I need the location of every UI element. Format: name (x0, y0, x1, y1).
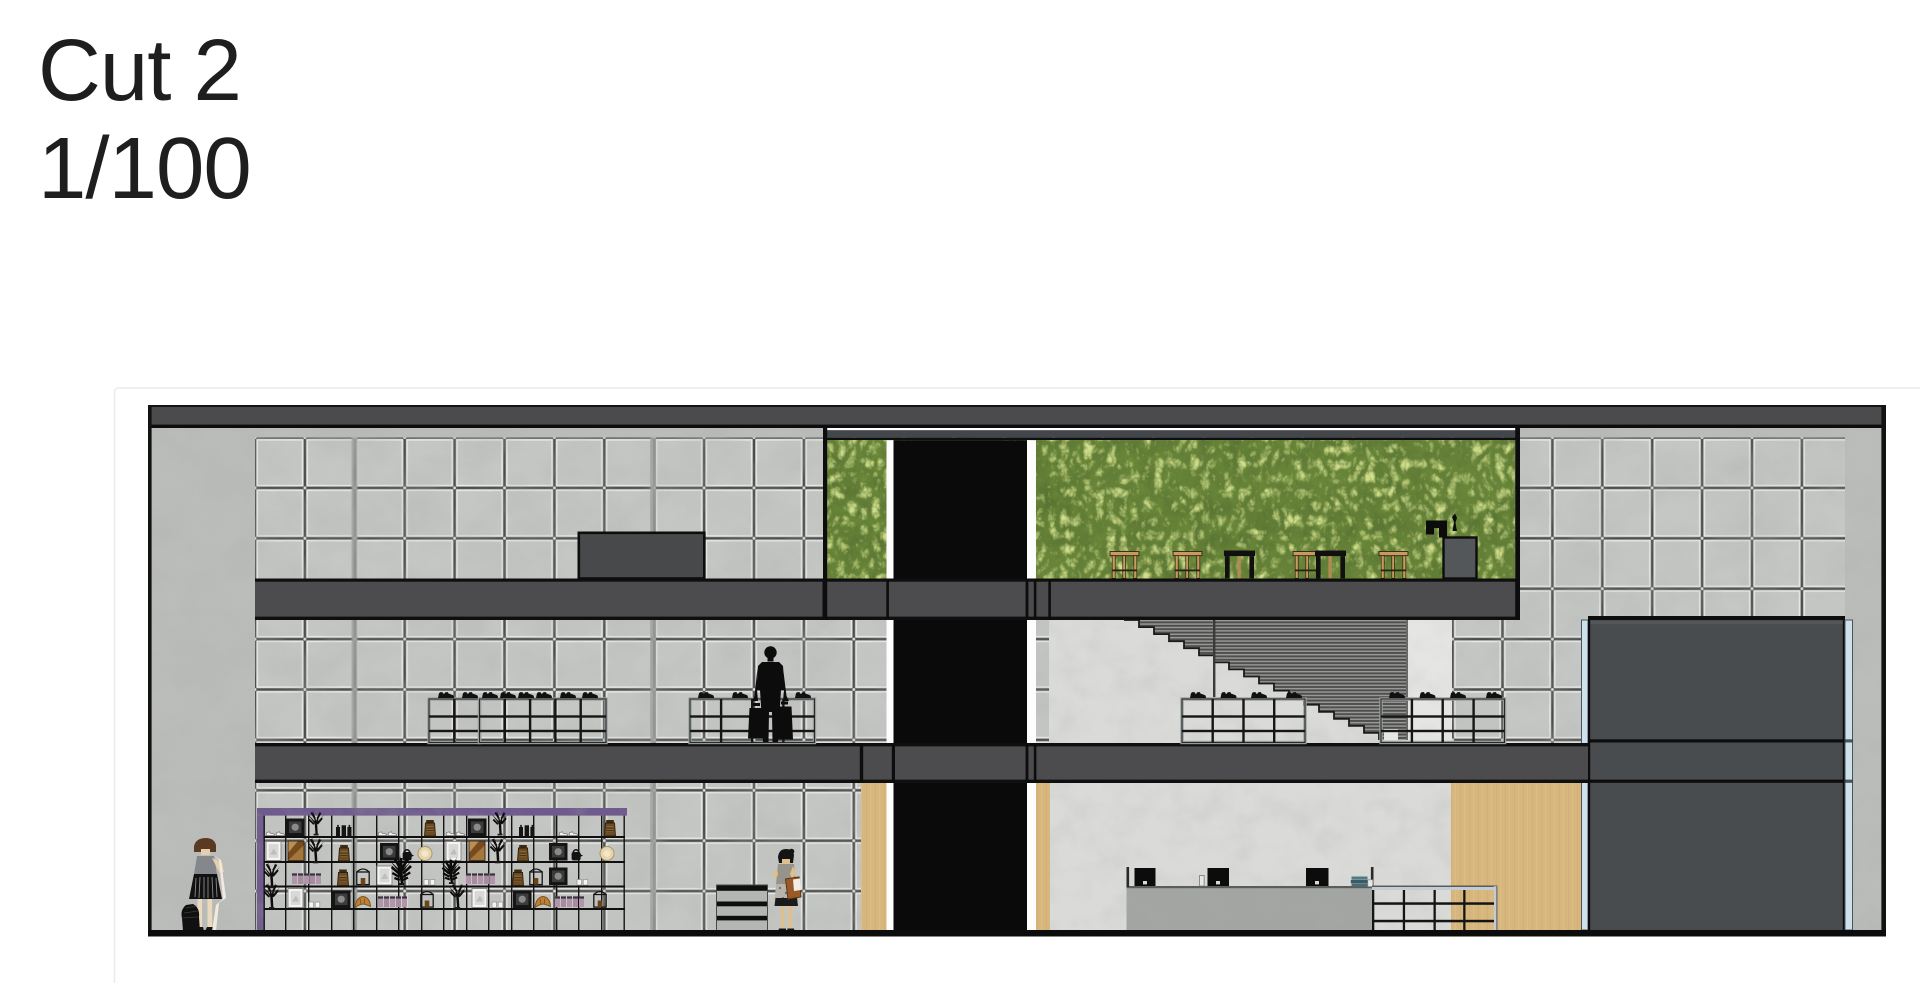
svg-text:1/100: 1/100 (38, 120, 251, 217)
svg-text:Cut 2: Cut 2 (38, 22, 241, 119)
